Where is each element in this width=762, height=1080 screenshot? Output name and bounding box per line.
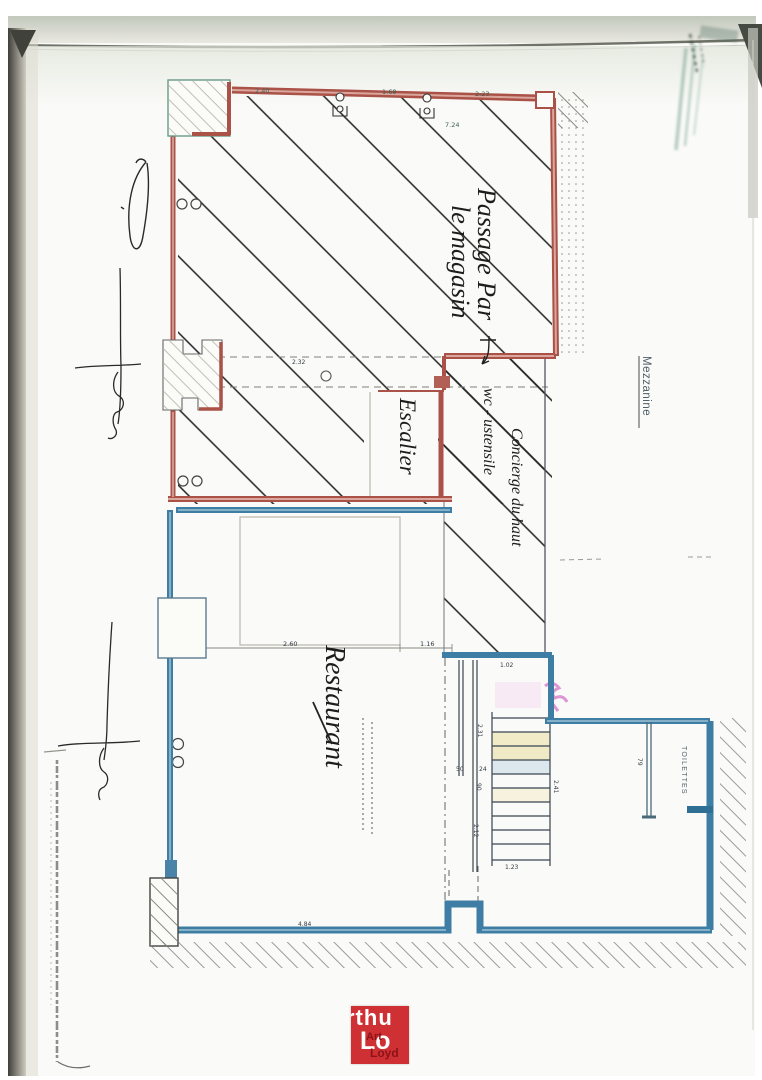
logo-small-top: Art (366, 1032, 382, 1043)
dim-top-3: 2.23 (475, 90, 489, 98)
dim-top-total: 7.24 (445, 121, 459, 129)
toilettes-door-bar (687, 806, 713, 813)
label-passage-line1: Passage Par (472, 187, 501, 321)
dim-bottom-wall: 4.84 (298, 921, 312, 928)
arthur-loyd-logo: rthu Lo Art Loyd (351, 1006, 409, 1064)
logo-fragment-top: rthu (351, 1007, 393, 1029)
column-symbol (321, 371, 331, 381)
label-concierge: Concierge du haut (508, 428, 525, 547)
label-restaurant: Restaurant (319, 644, 350, 769)
pillar-bottom-left (150, 878, 178, 946)
dim-top-1: 2.40 (255, 87, 269, 95)
floor-plan-canvas: Passage Par le magasin Escalier wc - ust… (0, 0, 762, 1080)
dim-stair-len: 2.41 (552, 780, 559, 794)
dim-step-a: 50 (456, 766, 464, 773)
page-left-edge-shadow (8, 28, 26, 1076)
stipple-band (560, 96, 586, 358)
dim-rest-left: 2.60 (283, 640, 297, 648)
dim-top-2: 1.68 (382, 88, 396, 96)
label-wc: wc - ustensile (480, 388, 497, 475)
pillar-top-left (168, 80, 230, 136)
page-curl-band (8, 16, 756, 43)
dim-step-b: 24 (479, 766, 487, 773)
dim-rest-right: 1.16 (420, 640, 434, 648)
dim-step-c: 90 (475, 783, 482, 791)
logo-small-bottom: Loyd (370, 1047, 399, 1059)
label-passage-line2: le magasin (446, 205, 475, 318)
dim-landing-h: 2.31 (476, 724, 483, 738)
dim-inner: 2.32 (292, 359, 306, 366)
dim-stair-bottom: 1.23 (505, 864, 519, 871)
scanned-floorplan-page: Passage Par le magasin Escalier wc - ust… (0, 0, 762, 1080)
label-mezzanine: Mezzanine (640, 356, 652, 416)
pink-wash (495, 682, 541, 708)
label-toilettes: TOILETTES (680, 746, 687, 795)
left-wall-opening-block (158, 598, 206, 658)
label-escalier: Escalier (395, 397, 420, 476)
dim-toilet-w: 79 (636, 758, 643, 766)
dim-stair-mid: 2.12 (472, 824, 479, 838)
dim-landing-w: 1.02 (500, 662, 514, 669)
